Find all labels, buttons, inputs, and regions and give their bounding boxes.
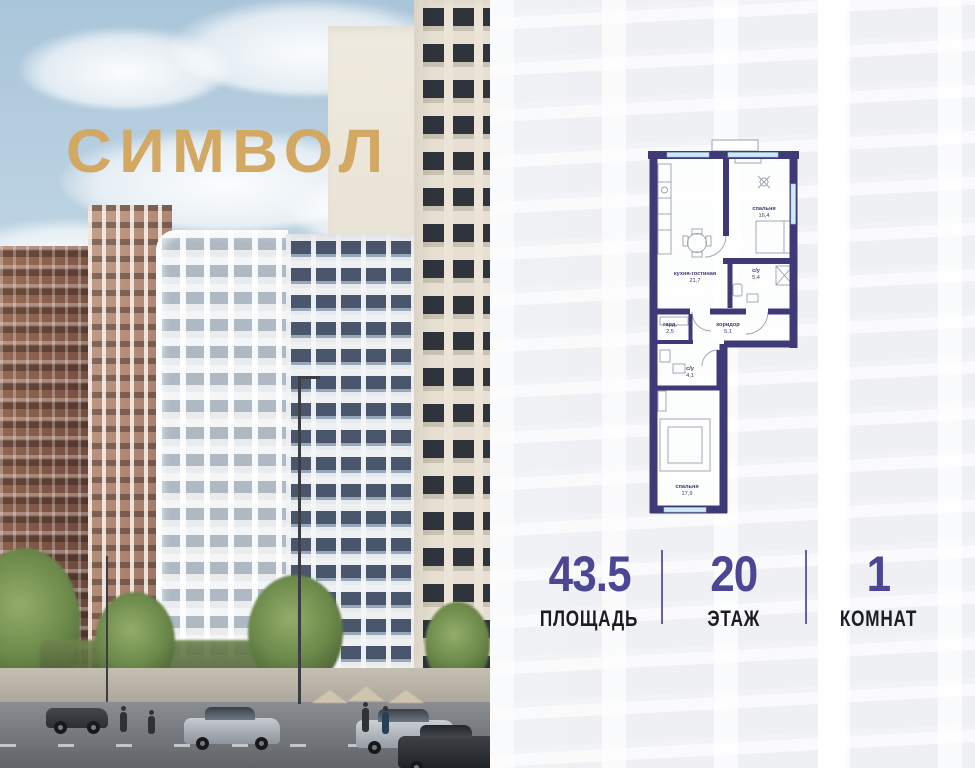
pedestrian [362, 708, 369, 732]
room-name: с/у [686, 366, 695, 372]
brand-logo-text: СИМВОЛ [66, 116, 440, 186]
room-area: 5,1 [724, 329, 732, 335]
parked-car [46, 708, 108, 728]
room-area: 21,7 [690, 278, 701, 284]
stat-area: 43.5 ПЛОЩАДЬ [518, 546, 661, 634]
room-name: с/у [752, 268, 761, 274]
room-area: 17,9 [682, 491, 693, 497]
room-name: коридор [716, 322, 740, 328]
room-name: спальня [675, 484, 698, 490]
building-photo: СИМВОЛ [0, 0, 492, 768]
apartment-listing-card: СИМВОЛ [0, 0, 975, 768]
room-name: спальня [752, 206, 775, 212]
stat-rooms-label: КОМНАТ [840, 606, 917, 632]
stat-floor-label: ЭТАЖ [708, 606, 761, 632]
floor-plan: спальня 16,4 кухня-гостиная 21,7 с/у 5,4… [640, 136, 808, 528]
stat-rooms-value: 1 [867, 548, 891, 600]
cafe-umbrella [312, 690, 348, 703]
street-lamp-pole [298, 376, 301, 704]
stat-floor-value: 20 [710, 548, 757, 600]
stat-area-label: ПЛОЩАДЬ [540, 606, 638, 632]
room-area: 2,5 [666, 329, 674, 335]
street-lamp-arm [298, 376, 320, 379]
stat-rooms: 1 КОМНАТ [807, 546, 950, 634]
apartment-stats: 43.5 ПЛОЩАДЬ 20 ЭТАЖ 1 КОМНАТ [518, 546, 950, 634]
stat-area-value: 43.5 [548, 548, 630, 600]
street-pole [106, 556, 108, 702]
room-area: 4,1 [686, 373, 694, 379]
info-panel: спальня 16,4 кухня-гостиная 21,7 с/у 5,4… [490, 0, 975, 768]
stat-floor: 20 ЭТАЖ [663, 546, 806, 634]
stats-divider [805, 550, 807, 624]
floor-plan-drawing: спальня 16,4 кухня-гостиная 21,7 с/у 5,4… [640, 136, 808, 528]
room-area: 16,4 [759, 213, 770, 219]
car-dark-foreground [398, 736, 492, 768]
pedestrian [382, 712, 389, 734]
car-sedan-silver [184, 718, 280, 744]
room-name: кухня-гостиная [674, 271, 716, 277]
cafe-umbrella [348, 686, 384, 701]
pedestrian [148, 716, 155, 734]
cafe-umbrella [388, 690, 424, 703]
room-area: 5,4 [752, 275, 760, 281]
pedestrian [120, 712, 127, 732]
room-name: гард. [663, 322, 677, 328]
plan-balcony-box [712, 140, 758, 151]
stats-divider [661, 550, 663, 624]
